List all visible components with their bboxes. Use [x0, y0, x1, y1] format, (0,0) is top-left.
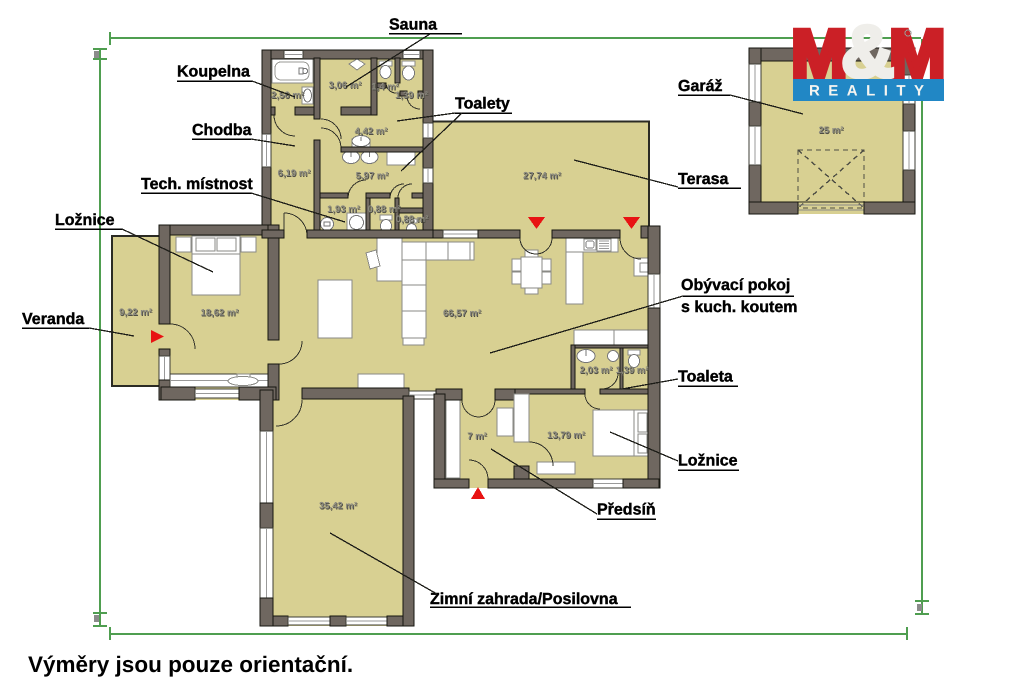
svg-text:7 m²: 7 m²: [467, 431, 487, 442]
svg-text:Obývací pokoj: Obývací pokoj: [681, 277, 790, 294]
svg-text:Ložnice: Ložnice: [678, 453, 738, 470]
svg-text:3,06 m²: 3,06 m²: [329, 80, 362, 91]
svg-text:1,93 m²: 1,93 m²: [327, 204, 360, 215]
svg-text:5,97 m²: 5,97 m²: [356, 171, 389, 182]
svg-text:Veranda: Veranda: [22, 311, 84, 328]
svg-text:Zimní zahrada/Posilovna: Zimní zahrada/Posilovna: [430, 591, 618, 608]
svg-text:Toaleta: Toaleta: [678, 369, 733, 386]
svg-text:35,42 m²: 35,42 m²: [319, 501, 357, 512]
svg-text:0,88 m²: 0,88 m²: [396, 214, 429, 225]
svg-text:Ložnice: Ložnice: [55, 212, 115, 229]
svg-text:Výměry jsou pouze orientační.: Výměry jsou pouze orientační.: [28, 652, 353, 677]
svg-text:6,19 m²: 6,19 m²: [278, 168, 311, 179]
svg-text:1,39 m²: 1,39 m²: [395, 90, 428, 101]
svg-text:13,79 m²: 13,79 m²: [547, 430, 585, 441]
svg-text:Sauna: Sauna: [389, 17, 437, 34]
svg-text:1,39 m²: 1,39 m²: [616, 365, 649, 376]
svg-text:18,62 m²: 18,62 m²: [200, 308, 238, 319]
svg-text:Předsíň: Předsíň: [597, 502, 656, 519]
svg-text:4,42 m²: 4,42 m²: [355, 126, 388, 137]
svg-text:2,56 m²: 2,56 m²: [271, 90, 304, 101]
svg-text:Chodba: Chodba: [192, 122, 252, 139]
svg-text:Toalety: Toalety: [455, 96, 510, 113]
svg-text:Koupelna: Koupelna: [177, 64, 250, 81]
svg-text:Terasa: Terasa: [678, 171, 729, 188]
svg-text:2,03 m²: 2,03 m²: [580, 365, 613, 376]
svg-text:27,74 m²: 27,74 m²: [523, 171, 561, 182]
svg-text:25 m²: 25 m²: [819, 125, 844, 136]
svg-text:9,22 m²: 9,22 m²: [119, 307, 152, 318]
svg-text:s kuch. koutem: s kuch. koutem: [681, 299, 797, 316]
svg-text:Garáž: Garáž: [678, 78, 722, 95]
svg-text:Tech. místnost: Tech. místnost: [141, 176, 253, 193]
svg-text:66,57 m²: 66,57 m²: [443, 308, 481, 319]
